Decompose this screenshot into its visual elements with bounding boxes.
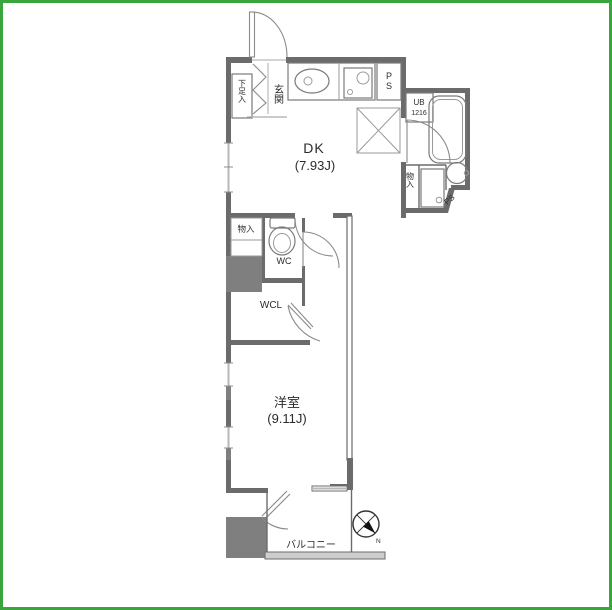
wall-segment: [302, 283, 305, 306]
pipe-space-top-label: PS: [384, 71, 394, 91]
balcony-label: バルコニー: [286, 539, 336, 551]
wall-segment: [262, 278, 305, 283]
entrance-label: 玄関: [272, 83, 284, 105]
hall-door-arc: [295, 218, 333, 256]
balcony-edge-rail: [265, 552, 385, 559]
unit-bath-label: UB: [413, 98, 424, 107]
window-balcony: [312, 486, 347, 491]
storage-hall-box-lower: [231, 240, 262, 256]
washing-machine-icon: [421, 169, 444, 207]
floor-plan-image: N DK (7.93J) 洋室 (9.11J) バルコニー 玄関 下足入 物入 …: [0, 0, 612, 610]
folding-door-icon: [253, 64, 266, 114]
sink-drain: [304, 77, 312, 85]
wall-segment: [302, 218, 305, 232]
compass-north-label: N: [376, 538, 381, 545]
shutter-pocket: [226, 386, 231, 400]
wall-segment: [406, 88, 470, 93]
wall-segment: [226, 213, 295, 218]
wall-segment: [401, 208, 446, 213]
compass-icon: N: [353, 511, 381, 545]
wall-segment: [226, 340, 310, 345]
entrance-door-leaf: [250, 12, 255, 57]
western-room-size-label: (9.11J): [267, 411, 307, 426]
wall-segment: [226, 57, 231, 143]
toilet-icon: [269, 218, 295, 255]
stove-knob: [348, 90, 353, 95]
floor-plan-canvas: N DK (7.93J) 洋室 (9.11J) バルコニー 玄関 下足入 物入 …: [3, 3, 609, 607]
structural-column: [226, 256, 262, 292]
entrance-door-arc: [252, 12, 287, 57]
room-door: [288, 303, 320, 341]
wc-label: WC: [277, 256, 292, 266]
western-room-label: 洋室: [274, 395, 300, 410]
unit-bath-size-label: 1216: [411, 110, 427, 117]
shutter-pocket: [226, 448, 231, 460]
structural-column: [226, 517, 267, 558]
wall-segment: [286, 57, 406, 63]
shoe-storage-label: 下足入: [238, 79, 247, 103]
windows: [224, 143, 347, 491]
window-room-left-1: [224, 363, 233, 386]
wall-segment: [226, 400, 231, 427]
dk-label: DK: [303, 140, 324, 156]
storage-hall-label: 物入: [237, 224, 255, 234]
wall-segment: [401, 57, 406, 118]
wc-door-arc: [303, 232, 339, 268]
stove-burner: [357, 72, 369, 84]
storage-washroom-label: 物入: [406, 171, 415, 188]
wall-segment: [302, 266, 305, 283]
wcl-label: WCL: [260, 300, 283, 311]
window-room-left-2: [224, 427, 233, 448]
refrigerator-space-icon: [357, 108, 400, 153]
wall-segment-hollow: [347, 216, 352, 460]
window-dk-left: [224, 143, 233, 192]
dk-size-label: (7.93J): [295, 158, 335, 173]
wall-segment: [226, 488, 268, 493]
